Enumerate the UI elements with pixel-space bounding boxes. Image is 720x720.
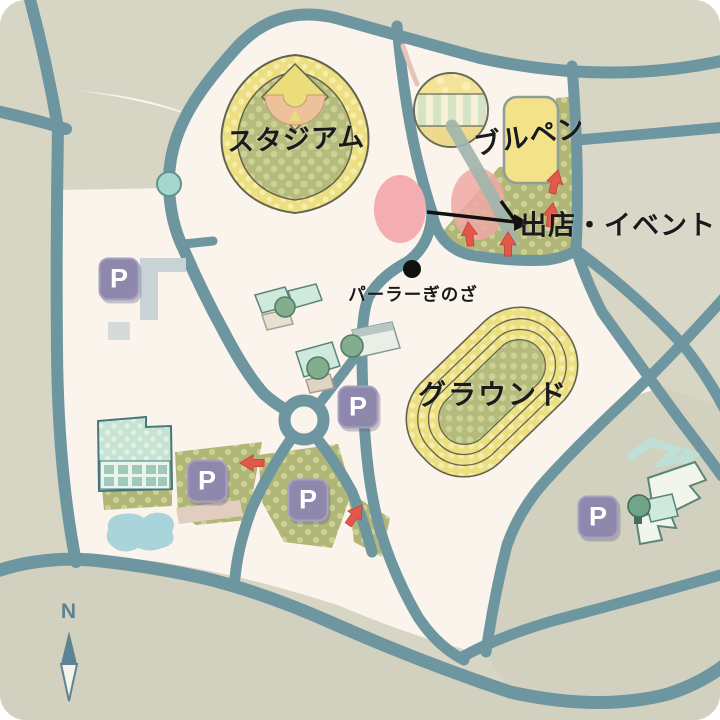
stadium-label: スタジアム	[226, 115, 365, 159]
map-canvas	[0, 0, 720, 720]
parking-badge-icon: P	[187, 460, 228, 503]
parking-badge-icon: P	[578, 496, 619, 539]
tree-icon	[275, 297, 295, 317]
compass-north-label: N	[61, 600, 77, 624]
parking-badge-icon: P	[338, 386, 379, 429]
parlor-label: パーラーぎのざ	[348, 282, 478, 307]
parking-badge-icon: P	[288, 479, 329, 522]
parlor-location-dot	[403, 260, 421, 278]
pond	[107, 513, 174, 552]
park-facility-map: スタジアム ブルペン 出店・イベント パーラーぎのざ グラウンド N P P P…	[0, 0, 720, 720]
parking-badge-icon: P	[99, 258, 140, 301]
tree-icon	[157, 172, 181, 196]
big-mint-building	[98, 417, 172, 491]
ground-label: グラウンド	[418, 373, 568, 413]
tree-icon	[307, 357, 329, 379]
tree-icon	[628, 495, 650, 517]
roundabout	[285, 401, 324, 440]
tree-icon	[341, 335, 363, 357]
stalls-events-label: 出店・イベント	[520, 204, 716, 243]
